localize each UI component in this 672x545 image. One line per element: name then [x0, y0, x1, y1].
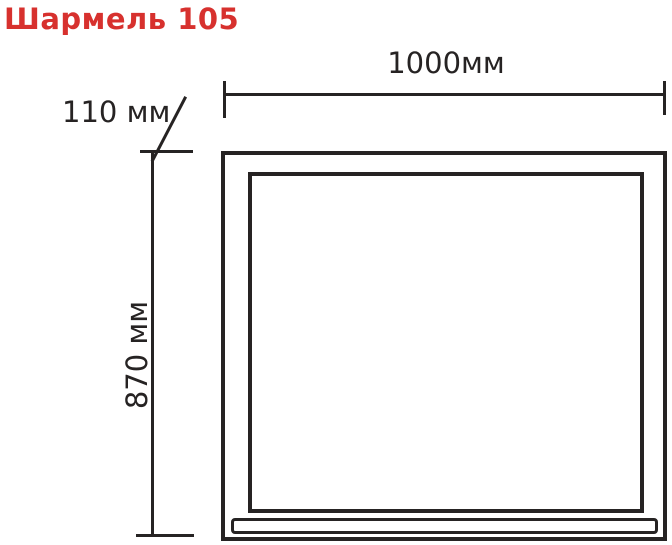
width-dimension-tick-left [223, 81, 226, 118]
drawing-canvas: Шармель 105 1000мм 110 мм 870 мм [0, 0, 672, 545]
height-dimension-line [151, 151, 154, 537]
width-dimension-line [224, 93, 666, 96]
width-dimension-tick-right [663, 81, 666, 115]
width-dimension-label: 1000мм [376, 46, 516, 80]
height-dimension-tick-bottom [136, 534, 194, 537]
mirror-shelf [231, 518, 658, 534]
product-title: Шармель 105 [4, 2, 239, 36]
mirror-glass [248, 172, 644, 513]
depth-dimension-label: 110 мм [62, 95, 170, 129]
height-dimension-tick-top [140, 150, 193, 153]
